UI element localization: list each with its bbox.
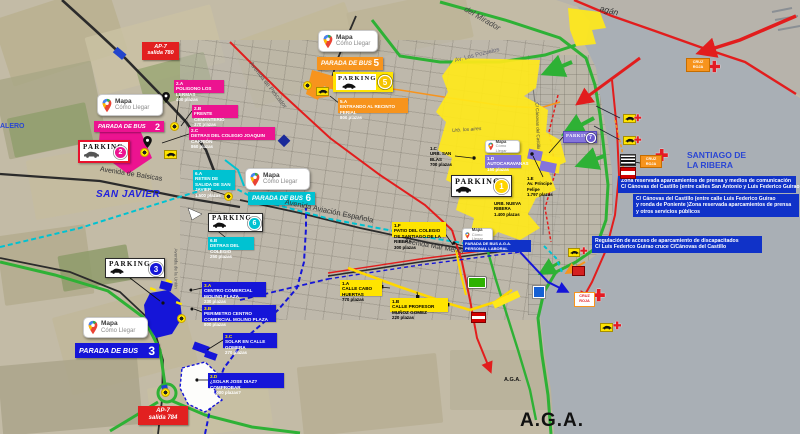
santiago-label: SANTIAGO DE LA RIBERA: [687, 150, 746, 170]
san-javier-label: SAN JAVIER: [96, 189, 160, 200]
first-aid-cross-icon: ✚: [634, 136, 642, 145]
zone-1e-text: 1.EAv. Príncipe Felipe1.797 plazas: [527, 176, 555, 197]
como-llegar-card-2[interactable]: MapaCómo Llegar: [97, 94, 163, 116]
gmaps-pin-icon: [88, 320, 98, 335]
road-label-union: Avenida de la Unión: [174, 249, 179, 289]
parking-3: PARKING 3: [105, 258, 165, 278]
car-sign-icon: [164, 150, 177, 159]
map-pin-icon: [162, 92, 170, 103]
zone-1g-text: URB. NUEVA RIBERA1.400 plazas: [494, 201, 526, 217]
car-icon: [212, 222, 227, 228]
zone-1a: 1.ACALLE CABO HUERTAS770 plazas: [340, 280, 382, 296]
parking-5: PARKING 5: [333, 72, 393, 92]
car-icon: [83, 151, 100, 158]
traffic-signal-icon: [303, 81, 312, 90]
press-zone-note: Zona reservada aparcamientos de prensa y…: [618, 176, 796, 193]
white-arrow: [188, 208, 202, 220]
car-sign-icon: [568, 248, 580, 257]
bus-stop-2: PARADA DE BUS2: [94, 121, 164, 132]
car-sign-icon: [600, 323, 613, 332]
car-sign-icon: [316, 87, 329, 96]
route-green-aga: [488, 252, 536, 420]
como-llegar-card-3[interactable]: MapaCómo Llegar: [83, 317, 148, 338]
zone-3c: 3.CSOLAR EN CALLE GOMERA270 plazas: [223, 333, 277, 348]
aid-station-box: CRUZROJA: [640, 155, 662, 168]
aga-label-large: A.G.A.: [520, 410, 584, 432]
car-icon: [109, 268, 125, 274]
striped-sign-icon: [620, 154, 636, 166]
first-aid-cross-icon: ✚: [634, 114, 642, 123]
gmaps-pin-icon: [488, 142, 494, 151]
ap7-exit-784: AP-7 salida 784: [138, 406, 188, 425]
bus-stop-5: PARADA DE BUS5: [317, 57, 383, 70]
como-llegar-card-1[interactable]: MapaCómo Llegar: [485, 140, 520, 153]
first-aid-cross-icon: ✚: [580, 247, 588, 256]
como-llegar-card-5[interactable]: MapaCómo Llegar: [318, 30, 378, 52]
traffic-signal-icon: [177, 314, 186, 323]
traffic-signal-icon: [140, 148, 149, 157]
zone-6b: 6.BDETRAS DEL COLEGIO250 plazas: [208, 237, 254, 250]
como-llegar-card-6[interactable]: MapaCómo Llegar: [245, 168, 310, 190]
zone-6a: 6.ARETEN DE SALIDA DE SAN JAVIER1.500 pl…: [193, 170, 235, 190]
green-road-badge-icon: [468, 277, 486, 288]
bus-stop-3: PARADA DE BUS3: [75, 343, 159, 358]
traffic-signal-icon: [170, 122, 179, 131]
disabled-zone-note: Regulación de acceso de aparcamiento de …: [592, 236, 762, 253]
traffic-signal-icon: [224, 192, 233, 201]
zone-5a: 5.AENTRANDO AL RECINTO FERIAL800 plazas: [338, 98, 408, 113]
zone-2b: 2.BFRENTE CEMENTERIO370 plazas: [192, 105, 238, 118]
no-entry-icon: [620, 167, 636, 179]
ap7-exit-780: AP-7 salida 780: [142, 42, 179, 60]
car-icon: [341, 83, 357, 89]
zone-1f: 1.FPATIO DEL COLEGIO DE SANTIAGO DE LA R…: [392, 222, 446, 237]
zone-2c: 2.CDETRAS DEL COLEGIO JOAQUIN CARRIÓN860…: [189, 127, 275, 140]
aid-station-box: CRUZROJA: [574, 292, 595, 307]
zone-3b: 3.BPERIMETRO CENTRO COMERCIAL MOLINO PLA…: [202, 305, 276, 322]
canovas-zone-note: C/ Cánovas del Castillo (entre calle Lui…: [633, 194, 799, 217]
parking-6: PARKING 6: [208, 213, 263, 232]
zone-1d: 1.DAUTOCARAVANAS150 plazas: [485, 155, 521, 168]
zone-1b: 1.BCALLE PROFESOR MUÑOZ GOMEZ220 plazas: [390, 298, 448, 312]
aid-station-box: CRUZROJA: [686, 58, 710, 72]
red-sign-icon: [572, 266, 585, 276]
parking-7: PARKING 7: [563, 131, 597, 143]
first-aid-cross-icon: ✚: [613, 322, 621, 332]
bus-stop-aga: PARADA DE BUS A.G.A. PERSONAL LABORAL: [463, 240, 531, 252]
navy-diamond: [278, 134, 291, 147]
gmaps-pin-icon: [102, 98, 112, 113]
zone-3d: 3.D¿SOLAR JOSE DIAZ? COMPROBAR¿1.000 pla…: [208, 373, 284, 388]
car-icon: [455, 186, 472, 193]
traffic-signal-icon: [161, 388, 170, 397]
blue-sign-icon: [533, 286, 545, 298]
zone-2a: 2.APOLIGONO LOS LERMAS400 plazas: [174, 80, 224, 93]
parking-map: AP-7 salida 780 AP-7 salida 784 MapaCómo…: [0, 0, 800, 434]
gmaps-pin-icon: [323, 34, 333, 49]
gmaps-pin-icon: [250, 172, 260, 187]
route-green-south: [170, 400, 300, 433]
zone-1c-text: 1.CURB. SAN BLAS700 plazas: [430, 146, 460, 167]
zone-3a: 3.ACENTRO COMERCIAL MOLINO PLAZA230 plaz…: [202, 282, 266, 297]
parking-2: PARKING 2: [78, 140, 130, 163]
salero-fragment-label: ALERO: [0, 123, 25, 130]
gmaps-pin-icon: [465, 231, 470, 240]
parking-1: PARKING 1: [451, 175, 512, 197]
no-entry-icon: [471, 312, 486, 323]
aga-label-small: A.G.A.: [504, 377, 521, 383]
